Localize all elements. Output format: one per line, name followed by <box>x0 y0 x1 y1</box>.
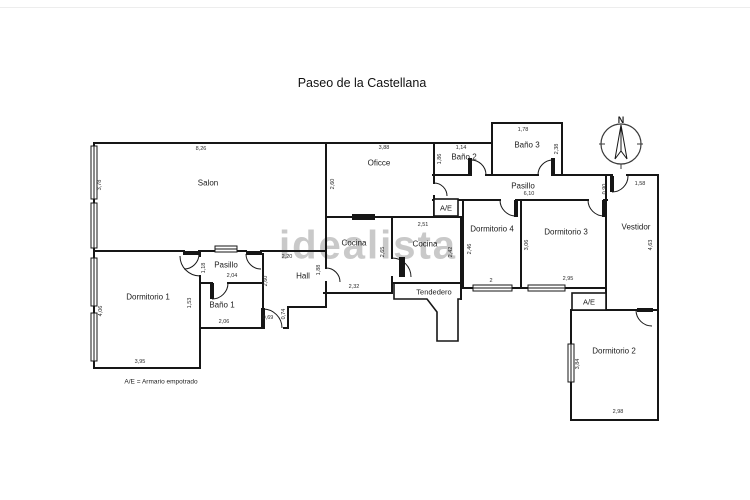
room-label-pasillo-sur: Pasillo <box>214 261 238 270</box>
dim-cocina-b-width: 2,51 <box>418 222 429 228</box>
dim-office-width: 3,88 <box>379 145 390 151</box>
compass-north-label: N <box>618 115 625 125</box>
dim-pasillo-sur-depth: 1,18 <box>201 263 207 274</box>
room-label-pasillo-norte: Pasillo <box>511 182 535 191</box>
dim-vestidor-depth: 4,63 <box>648 240 654 251</box>
room-label-dormitorio1: Dormitorio 1 <box>126 293 170 302</box>
room-label-dormitorio4: Dormitorio 4 <box>470 225 514 234</box>
dim-dormitorio3-width: 2,95 <box>563 276 574 282</box>
room-label-tendedero: Tendedero <box>416 288 451 297</box>
dim-dormitorio2-depth: 3,84 <box>575 359 581 370</box>
dim-bano1-depth: 1,53 <box>187 298 193 309</box>
dim-dormitorio1-width: 3,95 <box>135 359 146 365</box>
dim-salon-depth: 3,78 <box>97 180 103 191</box>
dim-office-depth: 2,60 <box>330 179 336 190</box>
room-label-bano1: Baño 1 <box>209 301 234 310</box>
dim-dormitorio4-width: 2 <box>489 278 492 284</box>
dim-dormitorio2-width: 2,98 <box>613 409 624 415</box>
room-label-hall: Hall <box>296 272 310 281</box>
dim-hall-side: 1,88 <box>316 265 322 276</box>
dim-hall-depth: 2,60 <box>263 276 269 287</box>
compass-icon <box>599 124 643 169</box>
room-label-dormitorio3: Dormitorio 3 <box>544 228 588 237</box>
dim-pasillo-norte-width: 6,10 <box>524 191 535 197</box>
room-label-bano3: Baño 3 <box>514 141 539 150</box>
room-label-office: Oficce <box>368 159 391 168</box>
dim-pasillo-sur-width: 2,04 <box>227 273 238 279</box>
room-label-cocina-a: Cocina <box>342 239 367 248</box>
dim-salon-width: 8,26 <box>196 146 207 152</box>
dim-cocina-a-width: 2,32 <box>349 284 360 290</box>
dim-bano1-width: 2,06 <box>219 319 230 325</box>
room-label-vestidor: Vestidor <box>622 223 651 232</box>
dim-hall-entry-width: 0,69 <box>263 315 274 321</box>
closet-label-south: A/E <box>583 298 595 307</box>
plan-title: Paseo de la Castellana <box>298 76 427 90</box>
room-label-cocina-b: Cocina <box>413 240 438 249</box>
room-label-bano2: Baño 2 <box>451 153 476 162</box>
floorplan-page: idealista <box>0 0 750 500</box>
dim-pasillo-norte-door: 0,90 <box>602 184 608 195</box>
dim-bano3-width: 1,78 <box>518 127 529 133</box>
dim-bano2-width: 1,14 <box>456 145 467 151</box>
dim-cocina-a-depth: 2,65 <box>380 247 386 258</box>
dim-hall-entry-depth: 0,74 <box>281 309 287 320</box>
room-label-salon: Salon <box>198 179 218 188</box>
dim-cocina-b-depth: 2,42 <box>448 247 454 258</box>
dim-dormitorio4-depth: 2,46 <box>467 244 473 255</box>
room-label-dormitorio2: Dormitorio 2 <box>592 347 636 356</box>
floorplan-drawing <box>0 0 750 500</box>
dim-bano3-depth: 2,38 <box>554 144 560 155</box>
dim-bano2-depth: 1,86 <box>437 154 443 165</box>
closet-label-north: A/E <box>440 204 452 213</box>
dim-dormitorio1-depth: 4,06 <box>98 306 104 317</box>
dim-hall-width: 2,20 <box>282 254 293 260</box>
dim-vestidor-width: 1,58 <box>635 181 646 187</box>
dim-dormitorio3-depth: 3,06 <box>524 240 530 251</box>
legend-text: A/E = Armario empotrado <box>124 379 197 386</box>
